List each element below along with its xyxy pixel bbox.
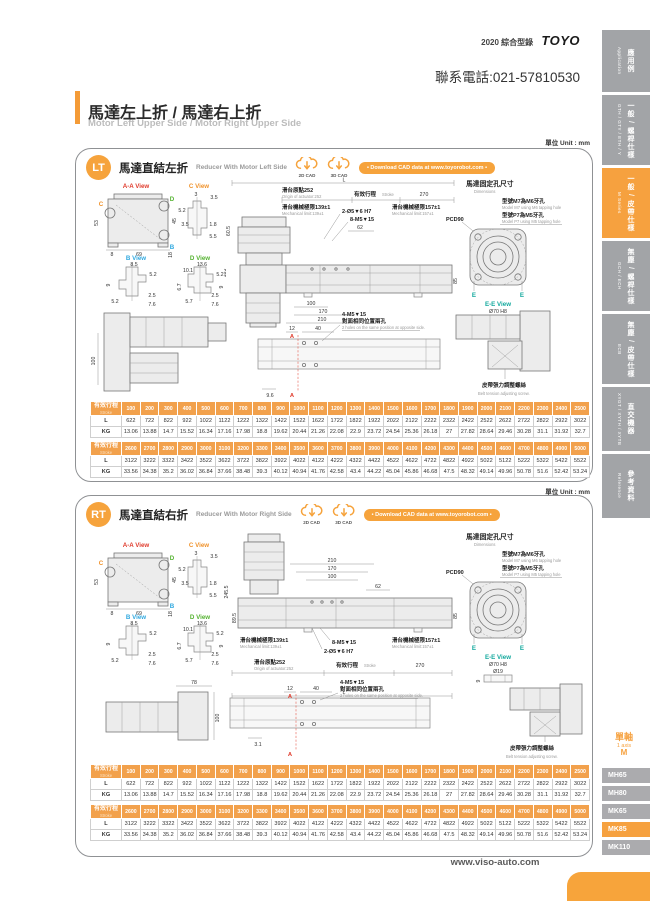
table-cell: 25.36 xyxy=(402,790,421,801)
m7-note-en: Model M7 using M6 tapping hole xyxy=(502,205,562,210)
marker-d: D xyxy=(170,196,175,203)
table-cell: 18.8 xyxy=(253,790,272,801)
pin-holes-label: 2-Ø5▼6 H7 xyxy=(324,649,353,655)
table-cell: 35.2 xyxy=(159,467,178,478)
model-item-mk85[interactable]: MK85 xyxy=(602,822,650,837)
length-row: L622722822922102211221222132214221522162… xyxy=(91,416,590,427)
table-cell: 5222 xyxy=(515,456,534,467)
dim: 13.6 xyxy=(197,621,207,627)
table-cell: 17.98 xyxy=(234,427,253,438)
table-cell: 822 xyxy=(159,416,178,427)
table-cell: 32.7 xyxy=(571,790,590,801)
belt-screw-zh: 皮帶張力調整螺絲 xyxy=(482,381,527,389)
mech-limit-left-zh: 滑台機械極限139±1 xyxy=(282,203,330,211)
table-cell: 922 xyxy=(178,416,197,427)
table-cell: 2322 xyxy=(440,416,459,427)
lt-badge: LT xyxy=(86,155,111,180)
table-cell: 40.12 xyxy=(271,830,290,841)
mech-limit-right-zh: 滑台機械極限157±1 xyxy=(392,203,440,211)
length-row: L312232223322342235223622372238223922402… xyxy=(91,456,590,467)
row-label: L xyxy=(91,416,122,427)
table-cell: 2122 xyxy=(402,416,421,427)
dim: 100 xyxy=(215,714,221,723)
svg-text:A-A View: A-A View xyxy=(123,542,150,549)
table-cell: 48.32 xyxy=(458,467,477,478)
table-cell: 1622 xyxy=(309,779,328,790)
p7-note-zh: 型號P7為M5牙孔 xyxy=(502,211,544,219)
origin-label-en: Origin of actuator:252 xyxy=(282,194,322,199)
table-cell: 43.4 xyxy=(346,830,365,841)
tab-xygt-xyth-xytb[interactable]: XYGT / XYTH / XYTB 直交機器 xyxy=(602,387,650,451)
stroke-header-cell: 4900 xyxy=(552,805,571,819)
table-cell: 35.2 xyxy=(159,830,178,841)
svg-text:D View: D View xyxy=(190,255,210,262)
mech-limit-left-zh: 滑台機械極限139±1 xyxy=(240,636,288,644)
table-cell: 4522 xyxy=(384,819,403,830)
stroke-header-cell: 100 xyxy=(122,765,141,779)
rt-mount: 馬達固定孔尺寸 Dimensions 型號M7為M6牙孔 Model M7 us… xyxy=(444,530,592,689)
table-cell: 3422 xyxy=(178,456,197,467)
download-cad-button[interactable]: • Download CAD data at www.toyorobot.com… xyxy=(359,162,495,174)
stroke-header-label: 有效行程Stroke xyxy=(91,765,122,779)
stroke-header-cell: 4800 xyxy=(533,805,552,819)
p7-note-zh: 型號P7為M5牙孔 xyxy=(502,564,544,572)
table-cell: 13.88 xyxy=(140,790,159,801)
dim: 3 xyxy=(195,551,198,557)
table-cell: 46.68 xyxy=(421,467,440,478)
stroke-header-cell: 2900 xyxy=(178,442,197,456)
stroke-header-cell: 200 xyxy=(140,402,159,416)
corner-accent-block xyxy=(567,872,650,901)
dim: 210 xyxy=(328,558,337,564)
stroke-header-cell: 3000 xyxy=(196,805,215,819)
stroke-header-cell: 1700 xyxy=(421,765,440,779)
panel-motor-left: LT 馬達直結左折 Reducer With Motor Left Side 2… xyxy=(75,148,593,482)
row-label: KG xyxy=(91,790,122,801)
stroke-header-cell: 4000 xyxy=(384,442,403,456)
table-cell: 2822 xyxy=(533,779,552,790)
section-marker-e: E xyxy=(472,292,476,299)
dim: 5.2 xyxy=(178,567,185,573)
table-cell: 2922 xyxy=(552,416,571,427)
table-cell: 22.9 xyxy=(346,790,365,801)
stroke-header-cell: 4900 xyxy=(552,442,571,456)
dim: 40 xyxy=(313,686,319,692)
table-cell: 23.72 xyxy=(365,790,384,801)
table-cell: 45.86 xyxy=(402,467,421,478)
dim: Ø70 H8 xyxy=(489,662,507,668)
table-cell: 2422 xyxy=(458,416,477,427)
marker-c: C xyxy=(99,560,104,567)
stroke-header-cell: 800 xyxy=(253,402,272,416)
rt-end-view: 皮帶張力調整螺絲 Belt tension adjusting screw. xyxy=(506,684,582,759)
page-subtitle: Motor Left Upper Side / Motor Right Uppe… xyxy=(88,118,301,129)
table-cell: 722 xyxy=(140,779,159,790)
mount-title-en: Dimensions xyxy=(474,189,495,194)
dim: 8.5 xyxy=(130,262,137,268)
stroke-header-cell: 4400 xyxy=(458,805,477,819)
dim: 5.5 xyxy=(209,234,216,240)
stroke-header-cell: 4100 xyxy=(402,442,421,456)
table-cell: 13.06 xyxy=(122,790,141,801)
mech-limit-left-en: Mechanical limit:139±1 xyxy=(282,211,324,216)
table-cell: 5122 xyxy=(496,819,515,830)
origin-label-en: Origin of actuator:252 xyxy=(254,666,294,671)
stroke-header-cell: 3700 xyxy=(327,805,346,819)
stroke-header-cell: 200 xyxy=(140,765,159,779)
table-cell: 21.26 xyxy=(309,790,328,801)
dim: 183 xyxy=(224,269,228,278)
four-m5-en: 2 holes on the same position at opposite… xyxy=(340,693,423,698)
model-item-mk110[interactable]: MK110 xyxy=(602,840,650,855)
stroke-header-cell: 2900 xyxy=(178,805,197,819)
pin-holes-label: 2-Ø5▼6 H7 xyxy=(342,209,371,215)
table-cell: 20.44 xyxy=(290,790,309,801)
dim: 18 xyxy=(168,611,174,617)
table-cell: 5522 xyxy=(571,819,590,830)
dim: 62 xyxy=(375,584,381,590)
dim: 45 xyxy=(172,218,178,224)
table-cell: 43.4 xyxy=(346,467,365,478)
lt-side-view: 100 xyxy=(91,313,226,391)
stroke-header-cell: 5000 xyxy=(571,442,590,456)
table-cell: 49.14 xyxy=(477,830,496,841)
cad-3d-download[interactable]: 3D CAD xyxy=(332,504,356,525)
dim: L xyxy=(343,178,346,184)
dim: 53 xyxy=(94,579,100,585)
section-marker-e: E xyxy=(520,645,524,652)
table-cell: 27.82 xyxy=(458,427,477,438)
table-cell: 1522 xyxy=(290,779,309,790)
lt-end-view: 皮帶張力調整螺絲 Belt tension adjusting screw. xyxy=(456,311,550,396)
tab-reference[interactable]: Reference 參考資料 xyxy=(602,454,650,518)
table-cell: 4622 xyxy=(402,819,421,830)
table-cell: 3622 xyxy=(215,456,234,467)
model-item-mh80[interactable]: MH80 xyxy=(602,786,650,801)
table-cell: 4322 xyxy=(346,456,365,467)
table-cell: 13.06 xyxy=(122,427,141,438)
table-cell: 41.76 xyxy=(309,467,328,478)
table-cell: 3722 xyxy=(234,819,253,830)
table-cell: 24.54 xyxy=(384,790,403,801)
dim: 270 xyxy=(420,192,429,198)
table-cell: 4422 xyxy=(365,819,384,830)
lt-stroke-tables: 有效行程Stroke100200300400500600700800900100… xyxy=(90,401,590,481)
dim: 3.5 xyxy=(181,222,188,228)
table-cell: 1122 xyxy=(215,416,234,427)
stroke-header-cell: 4700 xyxy=(515,805,534,819)
dim: 2.5 xyxy=(211,293,218,299)
table-cell: 2122 xyxy=(402,779,421,790)
stroke-header-cell: 2700 xyxy=(140,805,159,819)
dim: 40 xyxy=(315,326,321,332)
table-cell: 1322 xyxy=(253,416,272,427)
model-item-mk65[interactable]: MK65 xyxy=(602,804,650,819)
lt-top-view: 12 40 A A 9.6 4-M5▼15 對面相同位置兩孔 2 holes o… xyxy=(258,312,440,399)
stroke-header-cell: 3000 xyxy=(196,442,215,456)
table-cell: 22.9 xyxy=(346,427,365,438)
rt-badge: RT xyxy=(86,502,111,527)
stroke-header-cell: 3900 xyxy=(365,805,384,819)
cloud-download-icon xyxy=(332,504,356,519)
table-cell: 4922 xyxy=(458,819,477,830)
table-cell: 3322 xyxy=(159,819,178,830)
marker-b: B xyxy=(170,244,175,251)
stroke-header-cell: 3900 xyxy=(365,442,384,456)
stroke-header-cell: 1000 xyxy=(290,765,309,779)
dim: 3.5 xyxy=(210,195,217,201)
download-cad-button[interactable]: • Download CAD data at www.toyorobot.com… xyxy=(364,509,500,521)
contact-phone: 聯系電話:021-57810530 xyxy=(330,66,580,86)
table-cell: 31.1 xyxy=(533,790,552,801)
table-cell: 4822 xyxy=(440,819,459,830)
table-cell: 1422 xyxy=(271,779,290,790)
table-cell: 38.48 xyxy=(234,830,253,841)
table-cell: 3222 xyxy=(140,456,159,467)
table-cell: 4722 xyxy=(421,819,440,830)
dim: 3.5 xyxy=(210,554,217,560)
table-cell: 15.52 xyxy=(178,790,197,801)
dim: 62 xyxy=(357,225,363,231)
row-label: KG xyxy=(91,427,122,438)
tab-m-series[interactable]: M Series 一般 / 皮帶仕樣 xyxy=(602,168,650,238)
dim: 89.5 xyxy=(232,613,238,623)
table-cell: 17.16 xyxy=(215,427,234,438)
table-cell: 52.42 xyxy=(552,467,571,478)
weight-row: KG33.5634.3835.236.0236.8437.6638.4839.3… xyxy=(91,467,590,478)
stroke-header-cell: 1300 xyxy=(346,402,365,416)
stroke-header-cell: 2500 xyxy=(571,765,590,779)
row-label: KG xyxy=(91,830,122,841)
table-cell: 17.16 xyxy=(215,790,234,801)
mount-title-en: Dimensions xyxy=(474,542,495,547)
table-cell: 3822 xyxy=(253,819,272,830)
table-cell: 922 xyxy=(178,779,197,790)
weight-row: KG33.5634.3835.236.0236.8437.6638.4839.3… xyxy=(91,830,590,841)
table-cell: 49.96 xyxy=(496,830,515,841)
d-view: D View 13.6 10.1 5.2 6.7 9 5.7 2.5 7.6 xyxy=(177,614,225,667)
dim: 12 xyxy=(289,326,295,332)
c-view: C View 3 3.5 5.2 3.5 1.8 5.5 xyxy=(178,183,217,240)
table-cell: 34.38 xyxy=(140,467,159,478)
p7-note-en: Model P7 using M5 tapping hole xyxy=(502,219,561,224)
stroke-header-cell: 2800 xyxy=(159,805,178,819)
dim: 2.5 xyxy=(148,652,155,658)
table-cell: 32.7 xyxy=(571,427,590,438)
row-label: L xyxy=(91,456,122,467)
table-cell: 37.66 xyxy=(215,830,234,841)
table-cell: 53.24 xyxy=(571,467,590,478)
stroke-header-cell: 2100 xyxy=(496,765,515,779)
table-cell: 44.22 xyxy=(365,830,384,841)
table-cell: 30.28 xyxy=(515,427,534,438)
origin-label-zh: 滑台原點252 xyxy=(282,186,313,194)
table-cell: 14.7 xyxy=(159,427,178,438)
table-cell: 45.86 xyxy=(402,830,421,841)
catalog-year: 2020 綜合型錄 xyxy=(481,38,533,47)
table-cell: 19.62 xyxy=(271,427,290,438)
dim: 5.2 xyxy=(178,208,185,214)
stroke-header-cell: 300 xyxy=(159,765,178,779)
cad-3d-download[interactable]: 3D CAD xyxy=(327,157,351,178)
table-cell: 3422 xyxy=(178,819,197,830)
stroke-header-cell: 4400 xyxy=(458,442,477,456)
stroke-header-row: 有效行程Stroke260027002800290030003100320033… xyxy=(91,442,590,456)
stroke-header-cell: 400 xyxy=(178,402,197,416)
section-marker-e: E xyxy=(520,292,524,299)
table-cell: 4022 xyxy=(290,456,309,467)
stroke-header-label: 有效行程Stroke xyxy=(91,805,122,819)
stroke-header-cell: 3500 xyxy=(290,442,309,456)
tab-ecb[interactable]: ECB 無塵 / 皮帶仕樣 xyxy=(602,314,650,384)
marker-c: C xyxy=(99,201,104,208)
table-cell: 47.5 xyxy=(440,467,459,478)
mech-limit-right-en: Mechanical limit:157±1 xyxy=(392,211,434,216)
table-cell: 25.36 xyxy=(402,427,421,438)
stroke-label-zh: 有效行程 xyxy=(354,190,377,198)
table-cell: 18.8 xyxy=(253,427,272,438)
weight-row: KG13.0613.8814.715.5216.3417.1617.9818.8… xyxy=(91,427,590,438)
tab-gch-ech[interactable]: GCH / ECH 無塵 / 螺桿仕樣 xyxy=(602,241,650,311)
cad-2d-download[interactable]: 2D CAD xyxy=(295,157,319,178)
table-cell: 2622 xyxy=(496,416,515,427)
d-view: D View 13.6 10.1 5.2 6.7 9 5.7 2.5 7.6 xyxy=(177,255,225,308)
stroke-header-cell: 4000 xyxy=(384,805,403,819)
pcd-label: PCD90 xyxy=(446,217,464,223)
cad-2d-download[interactable]: 2D CAD xyxy=(300,504,324,525)
stroke-header-cell: 1500 xyxy=(384,765,403,779)
stroke-header-row: 有效行程Stroke100200300400500600700800900100… xyxy=(91,402,590,416)
table-cell: 31.92 xyxy=(552,790,571,801)
dim: 6.7 xyxy=(177,283,183,290)
table-cell: 1822 xyxy=(346,416,365,427)
table-cell: 3822 xyxy=(253,456,272,467)
dim: 9 xyxy=(106,283,112,286)
table-cell: 21.26 xyxy=(309,427,328,438)
dim: 8 xyxy=(111,611,114,617)
pcd-label: PCD90 xyxy=(446,570,464,576)
table-cell: 3622 xyxy=(215,819,234,830)
table-cell: 5322 xyxy=(533,819,552,830)
rt-title-en: Reducer With Motor Right Side xyxy=(196,511,292,518)
table-cell: 51.6 xyxy=(533,830,552,841)
table-cell: 3022 xyxy=(571,779,590,790)
rt-rail xyxy=(238,598,452,632)
m7-note-zh: 型號M7為M6牙孔 xyxy=(502,197,545,205)
table-cell: 27 xyxy=(440,790,459,801)
dim: 3 xyxy=(195,192,198,198)
lt-rail xyxy=(286,265,452,297)
stroke-header-cell: 4200 xyxy=(421,805,440,819)
dim: 12 xyxy=(287,686,293,692)
stroke-header-cell: 2600 xyxy=(122,442,141,456)
dim: 8.5 xyxy=(130,621,137,627)
table-cell: 2222 xyxy=(421,416,440,427)
table-cell: 1622 xyxy=(309,416,328,427)
table-cell: 3722 xyxy=(234,456,253,467)
dim: 9 xyxy=(106,642,112,645)
dim: 100 xyxy=(91,357,97,366)
rt-title-zh: 馬達直結右折 xyxy=(119,507,188,523)
row-label: L xyxy=(91,779,122,790)
dim: 10.1 xyxy=(183,627,193,633)
table-cell: 1822 xyxy=(346,779,365,790)
rt-side-view: 78 100 xyxy=(106,680,221,740)
origin-label-zh: 滑台原點252 xyxy=(254,658,285,666)
stroke-header-cell: 2400 xyxy=(552,402,571,416)
table-cell: 23.72 xyxy=(365,427,384,438)
dim: 5.2 xyxy=(149,272,156,278)
stroke-header-cell: 3600 xyxy=(309,805,328,819)
four-m5-line1: 4-M5▼15 xyxy=(342,312,366,318)
dim: 60.5 xyxy=(226,226,232,236)
stroke-header-cell: 2200 xyxy=(515,765,534,779)
stroke-header-cell: 400 xyxy=(178,765,197,779)
table-cell: 3522 xyxy=(196,456,215,467)
stroke-header-cell: 800 xyxy=(253,765,272,779)
stroke-header-cell: 900 xyxy=(271,402,290,416)
table-cell: 2222 xyxy=(421,779,440,790)
model-item-mh65[interactable]: MH65 xyxy=(602,768,650,783)
dim: 5.2 xyxy=(216,631,223,637)
stroke-header-cell: 1600 xyxy=(402,402,421,416)
stroke-header-cell: 3200 xyxy=(234,442,253,456)
dim: 3.1 xyxy=(254,742,261,748)
stroke-header-label: 有效行程Stroke xyxy=(91,442,122,456)
marker-b: B xyxy=(170,603,175,610)
stroke-header-cell: 2300 xyxy=(533,765,552,779)
table-cell: 1222 xyxy=(234,416,253,427)
table-cell: 53.24 xyxy=(571,830,590,841)
length-row: L312232223322342235223622372238223922402… xyxy=(91,819,590,830)
belt-screw-zh: 皮帶張力調整螺絲 xyxy=(510,744,555,752)
marker-d: D xyxy=(170,555,175,562)
lt-bottom-drawing: 100 12 40 A A 9.6 4-M5▼15 對面相同位 xyxy=(90,305,590,401)
table-cell: 42.58 xyxy=(327,467,346,478)
table-cell: 22.08 xyxy=(327,427,346,438)
table-cell: 16.34 xyxy=(196,790,215,801)
toyo-logo: TOYO xyxy=(541,33,580,48)
unit-label: 單位 Unit : mm xyxy=(470,137,590,147)
stroke-header-cell: 3700 xyxy=(327,442,346,456)
stroke-header-cell: 3800 xyxy=(346,442,365,456)
dim: 100 xyxy=(328,574,337,580)
stroke-header-cell: 2100 xyxy=(496,402,515,416)
table-cell: 48.32 xyxy=(458,830,477,841)
table-cell: 44.22 xyxy=(365,467,384,478)
dim: 18 xyxy=(168,252,174,258)
svg-text:D View: D View xyxy=(190,614,210,621)
section-marker-a: A xyxy=(290,393,295,399)
stroke-header-cell: 100 xyxy=(122,402,141,416)
p7-note-en: Model P7 using M5 tapping hole xyxy=(502,572,561,577)
tab-gth-gty-eth-y[interactable]: GTH / GTY / ETH / Y 一般 / 螺桿仕樣 xyxy=(602,95,650,165)
table-cell: 29.46 xyxy=(496,427,515,438)
tab-application[interactable]: Application 應用例 xyxy=(602,30,650,92)
section-marker-a: A xyxy=(288,752,293,758)
stroke-table-2: 有效行程Stroke260027002800290030003100320033… xyxy=(90,804,590,841)
table-cell: 722 xyxy=(140,416,159,427)
panel-motor-right: RT 馬達直結右折 Reducer With Motor Right Side … xyxy=(75,495,593,857)
table-cell: 2322 xyxy=(440,779,459,790)
stroke-header-cell: 1400 xyxy=(365,765,384,779)
stroke-header-cell: 3500 xyxy=(290,805,309,819)
stroke-header-cell: 700 xyxy=(234,402,253,416)
svg-text:A-A View: A-A View xyxy=(123,183,150,190)
table-cell: 5122 xyxy=(496,456,515,467)
stroke-header-cell: 4300 xyxy=(440,442,459,456)
table-cell: 20.44 xyxy=(290,427,309,438)
